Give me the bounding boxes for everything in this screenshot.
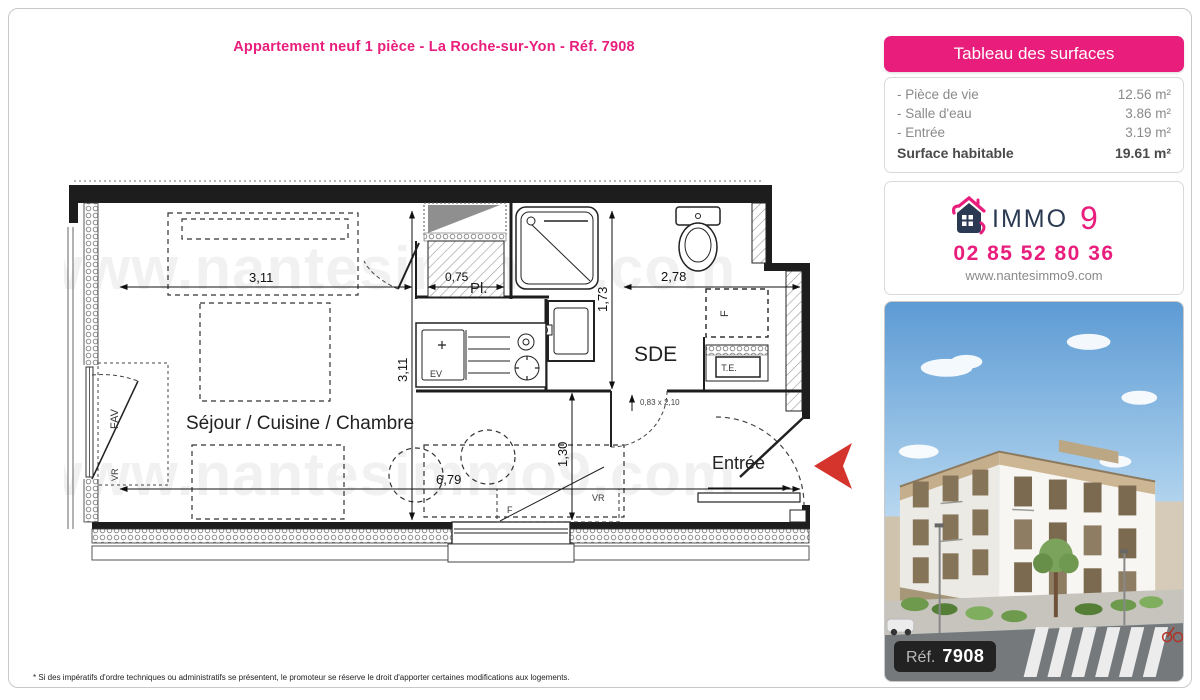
svg-text:FAV: FAV xyxy=(109,408,121,429)
house-icon xyxy=(954,198,984,233)
svg-text:SDE: SDE xyxy=(634,343,677,366)
surface-value: 12.56 m² xyxy=(1118,85,1171,104)
surface-value: 3.19 m² xyxy=(1125,123,1171,142)
svg-text:2,78: 2,78 xyxy=(661,269,686,284)
ref-badge: Réf. 7908 xyxy=(894,641,996,672)
surface-total-label: Surface habitable xyxy=(897,143,1014,164)
surface-row: - Salle d'eau 3.86 m² xyxy=(897,104,1171,123)
svg-text:3,11: 3,11 xyxy=(395,358,410,382)
surface-label: - Pièce de vie xyxy=(897,85,979,104)
svg-text:T.E.: T.E. xyxy=(721,363,737,373)
surface-row: - Entrée 3.19 m² xyxy=(897,123,1171,142)
surface-total-value: 19.61 m² xyxy=(1115,143,1171,164)
fridge-and-electrical xyxy=(706,289,768,381)
svg-text:www.nantesimmo9.com: www.nantesimmo9.com xyxy=(64,235,736,302)
agency-website[interactable]: www.nantesimmo9.com xyxy=(965,268,1102,283)
svg-text:VR: VR xyxy=(110,468,120,481)
floorplan-drawing: www.nantesimmo9.com www.nantesimmo9.com xyxy=(64,177,864,572)
svg-text:Pl.: Pl. xyxy=(470,280,488,297)
svg-text:F: F xyxy=(719,310,731,317)
ref-label: Réf. xyxy=(906,649,935,667)
svg-text:3,11: 3,11 xyxy=(249,270,273,285)
svg-text:VR: VR xyxy=(592,493,605,503)
page-title: Appartement neuf 1 pièce - La Roche-sur-… xyxy=(64,39,804,55)
agency-logo: IMMO 9 xyxy=(950,194,1118,240)
brand-number: 9 xyxy=(1080,200,1098,236)
floorplan: www.nantesimmo9.com www.nantesimmo9.com xyxy=(64,177,864,572)
svg-text:F: F xyxy=(507,505,513,515)
svg-text:1,30: 1,30 xyxy=(555,442,570,467)
shower xyxy=(516,207,598,289)
surfaces-panel: - Pièce de vie 12.56 m² - Salle d'eau 3.… xyxy=(884,77,1184,173)
surface-label: - Entrée xyxy=(897,123,945,142)
agency-panel: IMMO 9 02 85 52 80 36 www.nantesimmo9.co… xyxy=(884,181,1184,295)
page-card: Appartement neuf 1 pièce - La Roche-sur-… xyxy=(8,8,1192,688)
surface-label: - Salle d'eau xyxy=(897,104,972,123)
surfaces-panel-header: Tableau des surfaces xyxy=(884,36,1184,72)
svg-text:Séjour / Cuisine / Chambre: Séjour / Cuisine / Chambre xyxy=(186,413,414,434)
surface-total-row: Surface habitable 19.61 m² xyxy=(897,143,1171,164)
brand-text: IMMO xyxy=(992,205,1068,233)
svg-text:0,75: 0,75 xyxy=(445,270,469,284)
agency-phone[interactable]: 02 85 52 80 36 xyxy=(953,242,1114,266)
svg-text:Entrée: Entrée xyxy=(712,453,765,473)
svg-text:1,73: 1,73 xyxy=(595,287,610,312)
svg-text:6,79: 6,79 xyxy=(436,472,461,487)
entrance-arrow-icon xyxy=(814,443,852,489)
svg-text:0,83 x 2,10: 0,83 x 2,10 xyxy=(640,398,680,407)
surface-row: - Pièce de vie 12.56 m² xyxy=(897,85,1171,104)
surface-value: 3.86 m² xyxy=(1125,104,1171,123)
building-render xyxy=(885,302,1183,681)
svg-text:EV: EV xyxy=(430,369,442,379)
svg-text:www.nantesimmo9.com: www.nantesimmo9.com xyxy=(64,441,736,508)
ref-number: 7908 xyxy=(942,646,984,667)
toilet xyxy=(676,207,720,271)
building-photo: Réf. 7908 xyxy=(884,301,1184,682)
footnote: * Si des impératifs d'ordre techniques o… xyxy=(33,673,570,682)
